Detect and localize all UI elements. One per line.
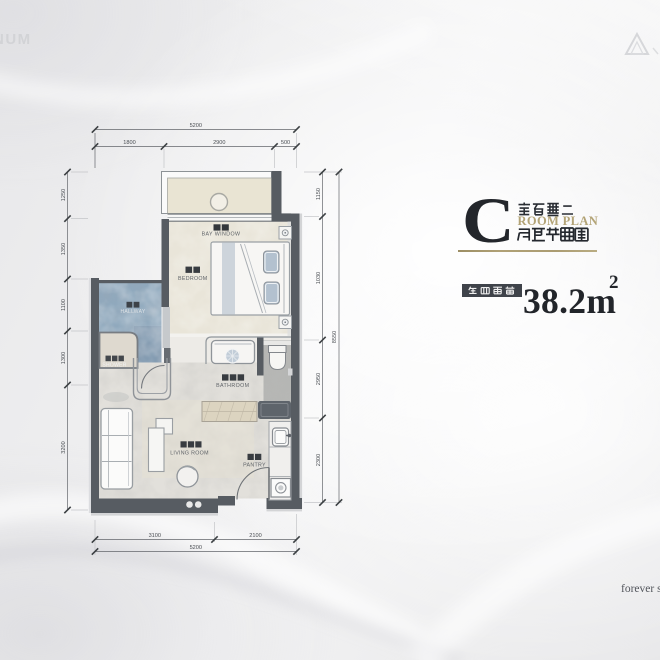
svg-text:1300: 1300 (61, 352, 67, 364)
svg-text:5200: 5200 (190, 545, 202, 551)
svg-text:SHOWER: SHOWER (102, 363, 126, 369)
svg-text:1100: 1100 (61, 299, 67, 311)
svg-text:1150: 1150 (316, 188, 322, 200)
svg-text:2300: 2300 (316, 454, 322, 466)
svg-text:500: 500 (281, 140, 290, 146)
svg-text:5200: 5200 (190, 123, 202, 129)
svg-text:1250: 1250 (61, 189, 67, 201)
svg-text:1030: 1030 (316, 272, 322, 284)
svg-text:HALLWAY: HALLWAY (120, 309, 145, 315)
svg-text:BAY WINDOW: BAY WINDOW (202, 232, 241, 238)
svg-text:2100: 2100 (249, 533, 261, 539)
svg-text:PANTRY: PANTRY (243, 462, 266, 468)
svg-text:8550: 8550 (332, 331, 338, 343)
svg-text:LIVING ROOM: LIVING ROOM (170, 450, 209, 456)
svg-text:2900: 2900 (213, 140, 225, 146)
svg-text:1350: 1350 (61, 243, 67, 255)
svg-text:3200: 3200 (61, 441, 67, 453)
svg-text:3100: 3100 (149, 533, 161, 539)
svg-text:2950: 2950 (316, 373, 322, 385)
svg-text:BEDROOM: BEDROOM (178, 276, 207, 282)
svg-text:1800: 1800 (123, 140, 135, 146)
svg-text:BATHROOM: BATHROOM (216, 383, 249, 389)
